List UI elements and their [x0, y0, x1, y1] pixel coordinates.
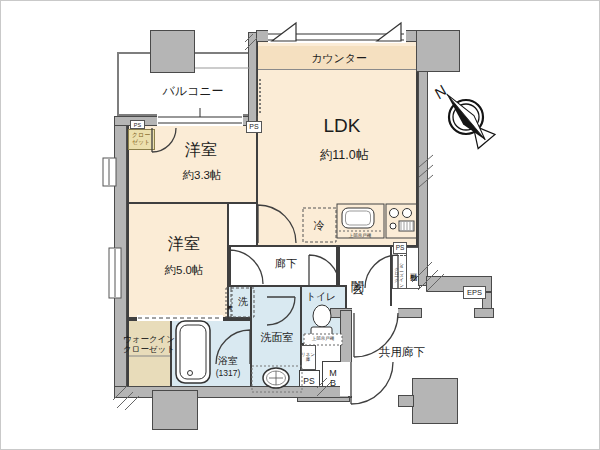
pillar-bottom-center	[152, 390, 198, 430]
room-ldk	[256, 40, 418, 247]
pillar-bottom-right	[412, 378, 458, 424]
walk-in-closet-label: ウォークイン クローゼット	[123, 335, 175, 354]
mb-label: M B	[329, 368, 337, 388]
linen-line2: 庫	[301, 357, 315, 362]
bedroom33-size: 約3.3帖	[183, 169, 222, 182]
closet-label: クロー ゼット	[132, 132, 150, 145]
bedroom50-size: 約5.0帖	[165, 264, 204, 277]
closet-line1: クロー	[132, 132, 150, 139]
hallway-label: 廊下	[275, 257, 297, 269]
room-bathroom	[170, 319, 252, 393]
bedroom50-label: 洋室	[168, 235, 200, 253]
pillar-top-right	[416, 30, 460, 72]
walk-in-closet	[127, 319, 172, 393]
ps3-label: PS	[396, 244, 405, 251]
compass-icon: N	[430, 82, 495, 149]
refrigerator-label: 冷	[314, 219, 325, 231]
shoes-in-cloak-label: シューズイン クローク	[394, 259, 404, 285]
floorplan: N バルコニー カウンター LDK 約11.0帖 洋室 約3.3帖 洋室 約5.…	[0, 0, 600, 450]
mb-line2: B	[329, 378, 337, 388]
wall-left	[114, 116, 127, 398]
wall-ldk-top	[256, 30, 418, 42]
wall-mb-vertical	[340, 310, 352, 398]
pillar-top-left	[150, 30, 195, 73]
wall-step-foot	[474, 308, 494, 318]
ps2-label: PS	[249, 123, 258, 131]
common-corridor-label: 共用廊下	[379, 346, 425, 359]
ps4-label: PS	[303, 377, 314, 387]
upper-cabinet-toilet-label: 上部吊戸棚	[312, 336, 335, 341]
ldk-size: 約11.0帖	[320, 148, 368, 162]
shoes-line1: シューズイン	[399, 259, 404, 285]
ps1-label: PS	[134, 121, 141, 127]
pillar-bottom-right-stub	[398, 395, 414, 407]
washer-label: 洗	[238, 296, 248, 307]
closet-line2: ゼット	[132, 139, 150, 146]
room-bedroom-50	[127, 202, 229, 319]
eps-label: EPS	[467, 288, 482, 296]
toilet-label: トイレ	[306, 291, 337, 302]
mb-line1: M	[329, 368, 337, 378]
linen-label: リネン 庫	[301, 352, 315, 362]
bathroom-size: (1317)	[216, 369, 241, 379]
balcony-label: バルコニー	[162, 85, 223, 98]
bedroom33-label: 洋室	[185, 141, 217, 159]
wic-line2: クローゼット	[123, 345, 175, 355]
wall-balcony-right	[248, 32, 257, 124]
north-label: N	[430, 82, 449, 102]
wall-bottom	[114, 386, 349, 398]
washroom-label: 洗面室	[261, 331, 294, 343]
ldk-label: LDK	[324, 115, 361, 136]
upper-cabinet-kitchen-label: 上部吊戸棚	[349, 233, 372, 238]
bathroom-label: 浴室	[218, 355, 238, 366]
counter-label: カウンター	[311, 52, 367, 64]
